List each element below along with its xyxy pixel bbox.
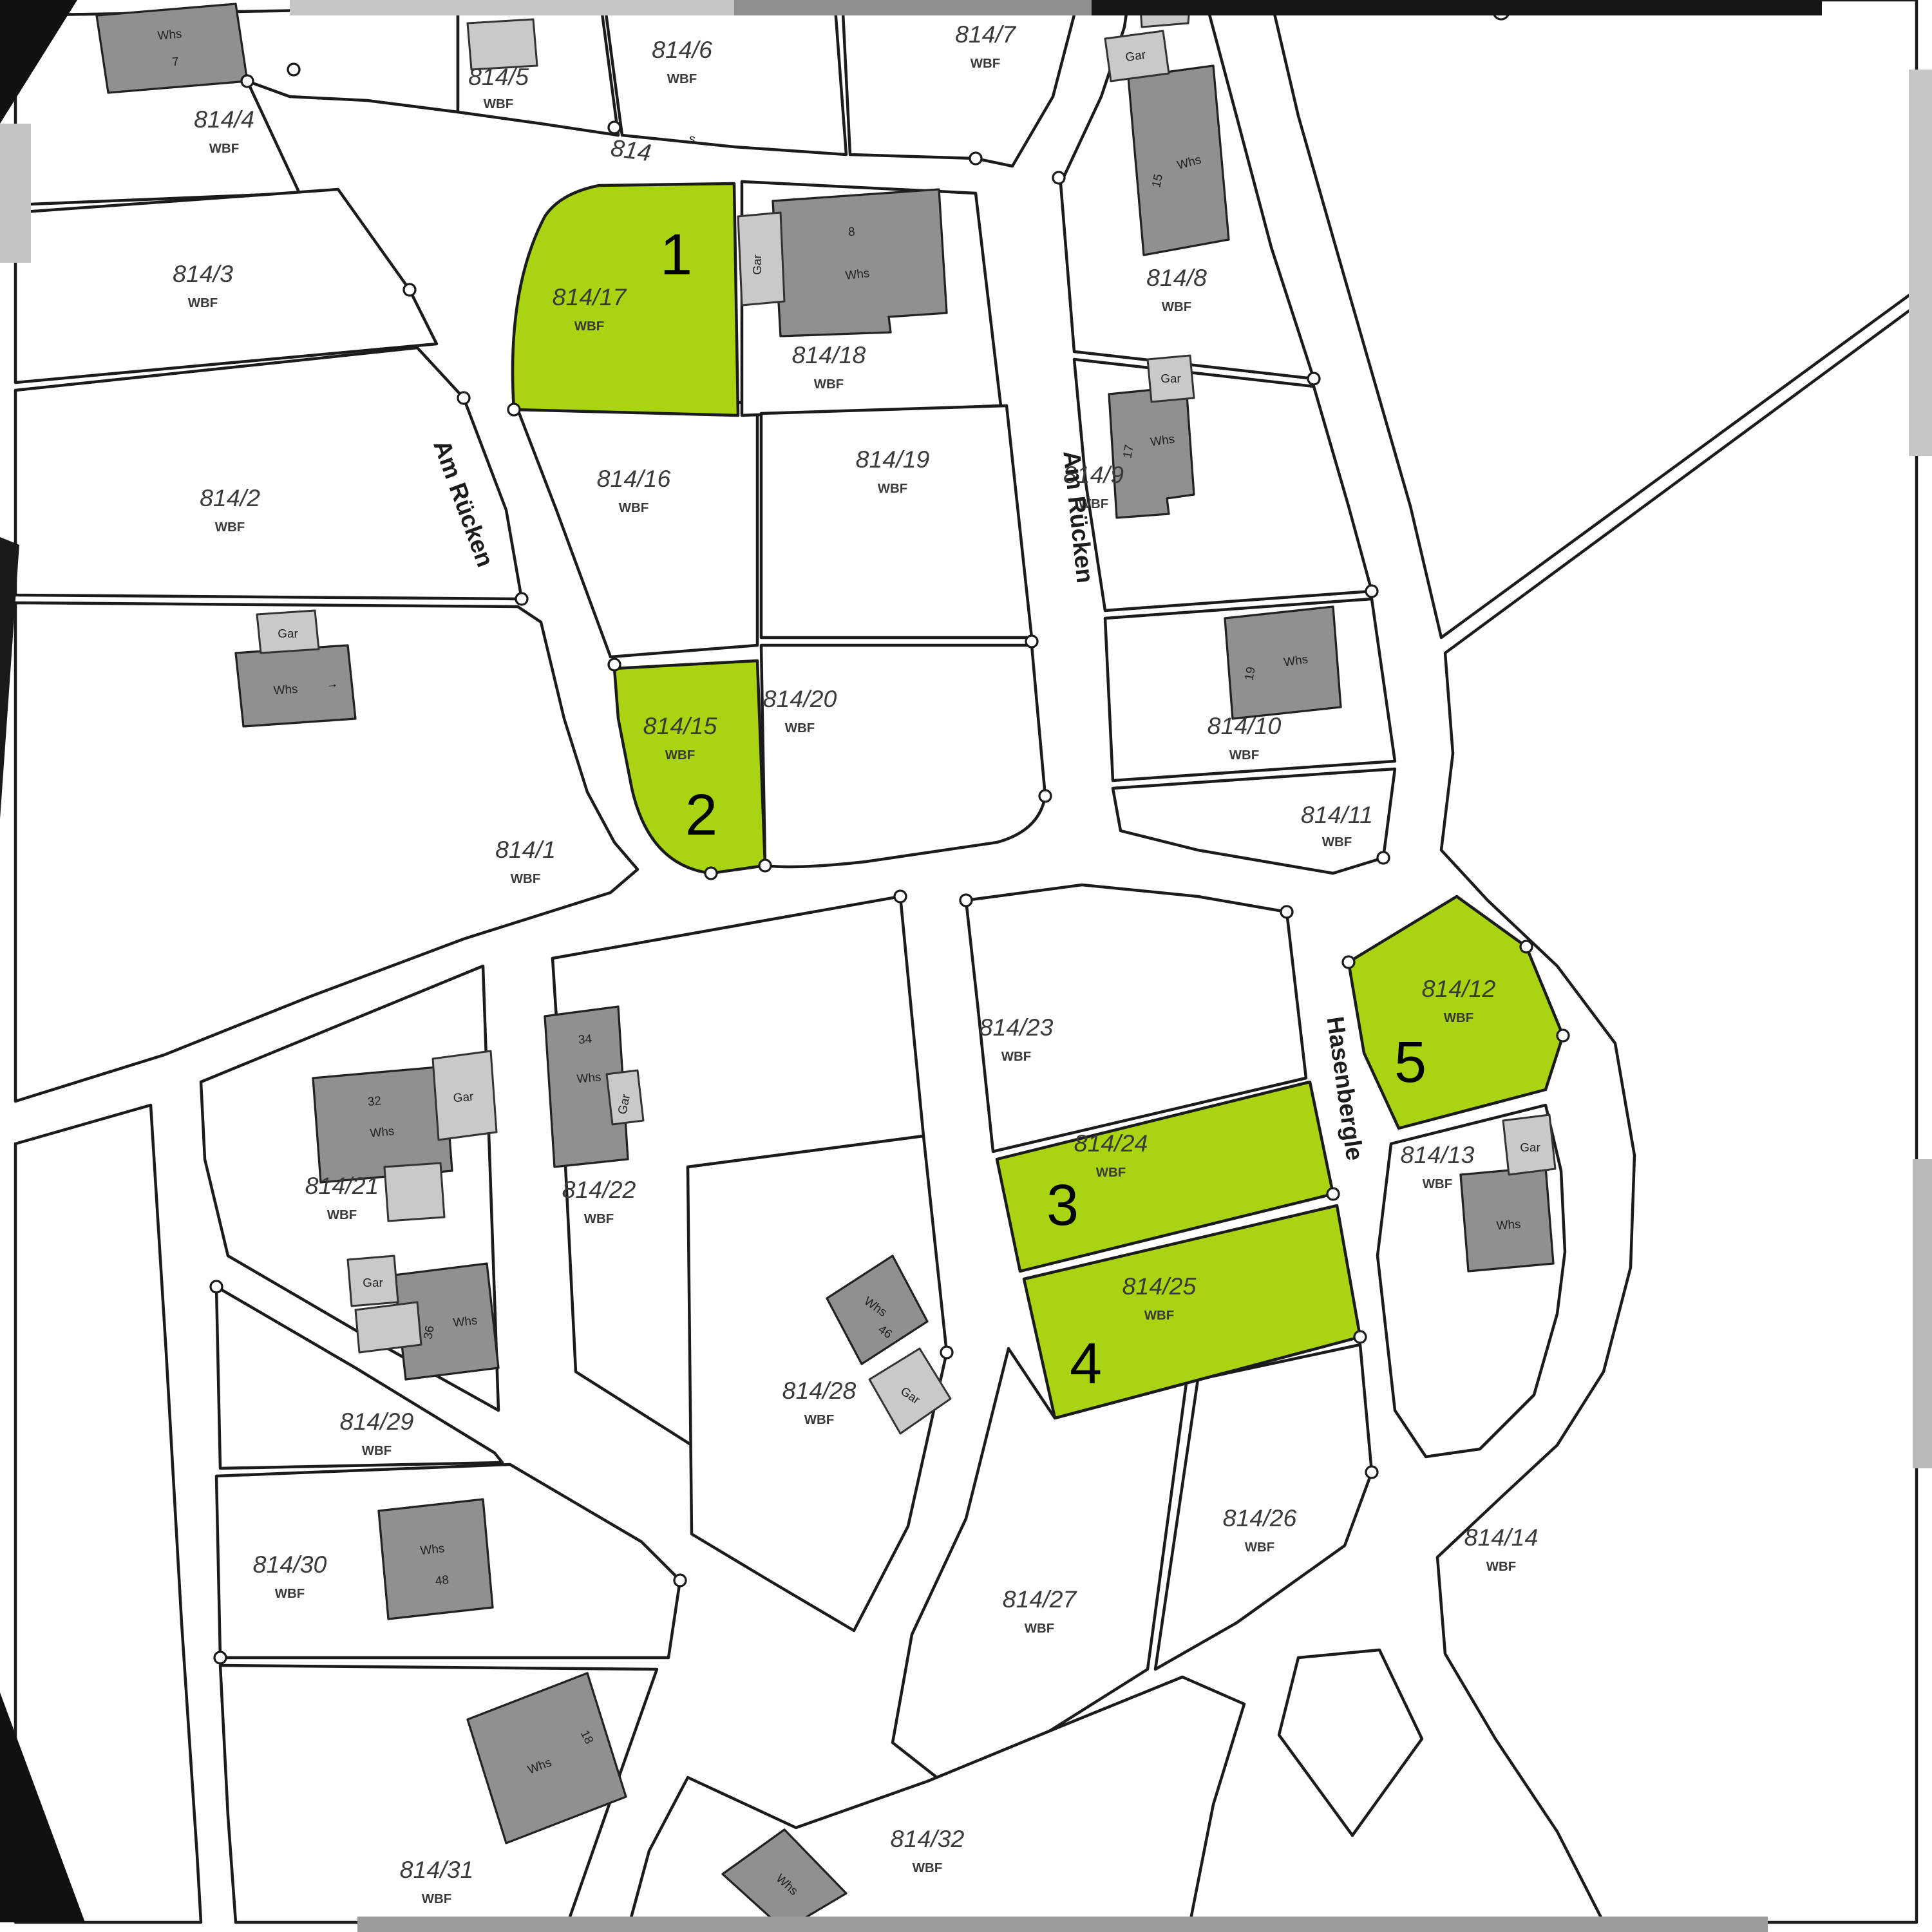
parcel-label-814-25: 814/25 [1122, 1273, 1197, 1300]
building-number: 48 [435, 1573, 450, 1588]
parcel-label-814-1: 814/1 [495, 836, 556, 863]
scan-artifact-right-gray-1 [1909, 70, 1932, 456]
parcel-code-814-15: WBF [665, 748, 695, 762]
building-whs-48 [379, 1499, 493, 1619]
survey-node [1327, 1188, 1339, 1200]
scan-artifact-bottom-bar [357, 1917, 1768, 1932]
parcel-code-814-2: WBF [215, 520, 245, 535]
parcel-code-814-7: WBF [971, 57, 1000, 71]
survey-node [508, 404, 520, 415]
survey-node [458, 392, 469, 404]
building-number: 8 [848, 225, 856, 240]
building-number: 15 [1150, 173, 1166, 189]
building-label: Whs [845, 267, 871, 283]
parcel-code-814-28: WBF [804, 1413, 834, 1427]
parcel-label-814-16: 814/16 [597, 465, 671, 492]
parcel-code-814-25: WBF [1144, 1309, 1174, 1323]
survey-node [1053, 172, 1065, 184]
survey-node [1039, 790, 1051, 802]
highlight-number-3: 3 [1046, 1173, 1079, 1238]
highlight-number-2: 2 [685, 783, 717, 848]
survey-node [705, 867, 717, 879]
parcel-label-814-27: 814/27 [1003, 1586, 1078, 1613]
survey-node [1308, 373, 1320, 384]
building-label: Gar [1124, 48, 1146, 64]
survey-node [941, 1347, 952, 1358]
parcel-code-814-31: WBF [422, 1892, 451, 1906]
building-annex [468, 19, 537, 70]
parcel-label-814-15: 814/15 [643, 712, 717, 739]
survey-node [1366, 1466, 1378, 1478]
parcel-code-814-10: WBF [1229, 748, 1259, 762]
parcel-label-814-13: 814/13 [1401, 1141, 1475, 1168]
building-number: 32 [367, 1094, 382, 1109]
parcel-code-814-18: WBF [814, 377, 844, 392]
parcel-label-814-12: 814/12 [1422, 975, 1496, 1002]
building-label: Gar [751, 254, 764, 275]
parcel-code-814-12: WBF [1444, 1011, 1473, 1025]
parcel-code-814-3: WBF [188, 296, 218, 310]
parcel-label-814-8: 814/8 [1146, 264, 1207, 291]
parcel-label-814-18: 814/18 [792, 341, 866, 368]
parcel-label-814-20: 814/20 [763, 685, 837, 712]
building-label: Whs [370, 1124, 395, 1141]
parcel-code-814-30: WBF [275, 1587, 305, 1601]
parcel-unlabeled-left[interactable] [15, 1105, 201, 1922]
building-label: Whs [157, 27, 182, 43]
parcel-code-814-20: WBF [785, 721, 815, 735]
parcel-814-19[interactable] [761, 406, 1032, 638]
parcel-label-814-6: 814/6 [652, 36, 712, 63]
parcel-code-814-14: WBF [1486, 1560, 1516, 1574]
parcel-label-814-14: 814/14 [1464, 1524, 1539, 1551]
building-number: 34 [578, 1032, 592, 1047]
building-annex-36 [355, 1302, 421, 1352]
street-label-814: 814 [609, 134, 653, 166]
building-whs-8 [773, 189, 947, 336]
parcel-label-814-24: 814/24 [1074, 1130, 1148, 1157]
parcel-code-814-23: WBF [1001, 1050, 1031, 1064]
parcel-island[interactable] [1279, 1650, 1422, 1835]
street-label-814-suffix: s [688, 131, 696, 146]
parcel-code-814-5: WBF [484, 97, 513, 111]
survey-node [1557, 1030, 1569, 1041]
survey-node [895, 891, 906, 902]
building-label: Gar [453, 1090, 474, 1106]
parcel-label-814-3: 814/3 [173, 260, 233, 287]
parcel-label-814-28: 814/28 [782, 1377, 857, 1404]
cadastral-map: 814/1 WBF 814/2 WBF 814/3 WBF 814/4 WBF … [0, 0, 1932, 1932]
survey-node [1366, 585, 1378, 597]
building-annex-32 [384, 1163, 444, 1221]
scan-artifact-right-gray-2 [1913, 1159, 1932, 1468]
scan-artifact-top-bar-2 [734, 0, 1092, 15]
parcel-code-814-8: WBF [1162, 300, 1191, 314]
highlight-number-5: 5 [1394, 1030, 1426, 1095]
highlight-number-4: 4 [1070, 1332, 1102, 1396]
scan-artifact-left-gray [0, 124, 31, 263]
building-whs-19 [1225, 607, 1341, 719]
building-label: Whs [273, 683, 298, 698]
parcel-814-16[interactable] [518, 402, 757, 657]
highlight-number-1: 1 [660, 223, 692, 287]
building-number: → [325, 677, 338, 691]
survey-node [241, 75, 253, 87]
building-label: Whs [576, 1070, 601, 1086]
parcel-label-814-32: 814/32 [891, 1825, 965, 1852]
parcel-code-814-21: WBF [327, 1208, 357, 1222]
survey-node [1354, 1331, 1366, 1343]
parcel-label-814-17: 814/17 [553, 283, 628, 310]
survey-node [1520, 941, 1532, 952]
parcel-code-814-27: WBF [1025, 1622, 1054, 1636]
survey-node [1026, 636, 1037, 647]
building-number: 17 [1121, 444, 1136, 459]
survey-node [288, 64, 299, 75]
parcel-label-814-22: 814/22 [562, 1176, 636, 1203]
parcel-label-814-31: 814/31 [400, 1856, 474, 1883]
scan-artifact-top-bar-1 [290, 0, 734, 15]
building-label: Gar [1160, 372, 1181, 386]
parcel-label-814-5: 814/5 [468, 63, 529, 90]
parcel-label-814-21: 814/21 [305, 1172, 379, 1199]
parcel-code-814-13: WBF [1423, 1177, 1452, 1191]
survey-node [516, 593, 527, 605]
parcel-label-814-2: 814/2 [200, 484, 260, 511]
parcel-code-814-17: WBF [574, 319, 604, 334]
parcel-code-814-26: WBF [1245, 1540, 1274, 1555]
building-label: Whs [1496, 1218, 1521, 1233]
building-label: Gar [363, 1276, 383, 1290]
parcel-label-814-11: 814/11 [1301, 801, 1373, 828]
parcel-code-814-19: WBF [878, 482, 907, 496]
parcel-label-814-29: 814/29 [340, 1408, 414, 1435]
building-whs-7 [97, 4, 247, 93]
parcel-814-20[interactable] [761, 645, 1045, 867]
building-number: 7 [171, 55, 179, 70]
building-label: Gar [278, 627, 298, 641]
survey-node [1281, 906, 1293, 918]
parcel-code-814-32: WBF [913, 1861, 942, 1875]
survey-node [211, 1281, 222, 1293]
building-number: 19 [1242, 666, 1258, 681]
survey-node [970, 153, 981, 164]
parcel-label-814-30: 814/30 [253, 1551, 327, 1578]
parcel-label-814-19: 814/19 [856, 446, 930, 473]
parcel-code-814-1: WBF [511, 872, 540, 886]
parcel-code-814-4: WBF [209, 142, 239, 156]
parcel-code-814-6: WBF [667, 72, 697, 86]
parcel-label-814-7: 814/7 [955, 21, 1017, 48]
parcel-code-814-16: WBF [619, 501, 649, 515]
survey-node [759, 860, 771, 871]
survey-node [404, 284, 415, 296]
building-number: 36 [421, 1325, 437, 1340]
survey-node [609, 122, 620, 133]
survey-node [609, 659, 620, 670]
survey-node [1343, 956, 1354, 968]
parcel-814-6[interactable] [605, 0, 846, 155]
parcel-label-814-10: 814/10 [1207, 712, 1282, 739]
parcel-label-814-4: 814/4 [194, 106, 254, 133]
parcel-code-814-29: WBF [362, 1444, 392, 1458]
parcel-code-814-24: WBF [1096, 1166, 1126, 1180]
survey-node [1378, 852, 1389, 864]
survey-node [214, 1652, 226, 1663]
building-label: Whs [453, 1314, 478, 1330]
survey-node [960, 895, 972, 906]
parcel-label-814-26: 814/26 [1223, 1504, 1297, 1531]
survey-node [674, 1575, 686, 1586]
parcel-code-814-11: WBF [1322, 835, 1352, 849]
building-label: Gar [1520, 1141, 1540, 1155]
scan-artifact-top-bar-3 [1092, 0, 1822, 15]
building-label: Whs [420, 1542, 446, 1558]
parcel-code-814-22: WBF [584, 1212, 614, 1226]
parcel-label-814-23: 814/23 [980, 1014, 1054, 1041]
